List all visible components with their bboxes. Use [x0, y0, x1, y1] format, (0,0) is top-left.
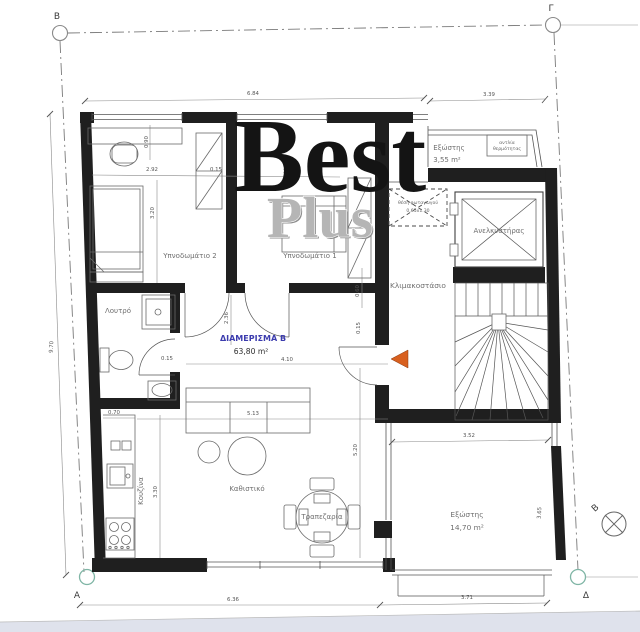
dim-hall-gap: 0.15 [161, 356, 173, 362]
dim-sofa-span: 5.13 [247, 411, 259, 417]
dim-desk-offset: 0.90 [144, 135, 150, 148]
floor-plan-drawing: Β Γ Α Δ Β 6.84 3.39 6.36 3.71 9.70 [0, 0, 640, 632]
label-kitchen: Κουζίνα [137, 477, 145, 505]
watermark-secondary: Plus [267, 185, 373, 250]
heat-pump-label-1: αντλία [499, 139, 515, 146]
label-stairwell: Κλιμακοστάσιο [390, 281, 446, 290]
dim-partition: 0.15 [210, 167, 222, 173]
label-bedroom2: Υπνοδωμάτιο 2 [162, 252, 216, 260]
label-dining: Τραπεζαρία [300, 513, 343, 521]
label-living-room: Καθιστικό [229, 485, 264, 493]
grid-letter-b: Β [54, 12, 60, 22]
apartment-area: 63,80 m² [234, 347, 269, 356]
dim-hall-depth: 2.36 [224, 311, 230, 324]
grid-letter-a: Α [74, 591, 81, 601]
label-bedroom1: Υπνοδωμάτιο 1 [282, 252, 336, 260]
dim-bedroom2-width: 2.92 [146, 167, 158, 173]
balcony-bottom-label: Εξώστης [450, 510, 483, 519]
dim-kitchen-depth: 3.30 [153, 485, 159, 498]
grid-letter-d: Δ [583, 591, 590, 601]
heat-pump-label-2: θερμότητας [493, 145, 521, 152]
dim-left-height: 9.70 [49, 340, 56, 353]
balcony-top-area: 3,55 m² [433, 156, 461, 164]
floor-plan-page: Β Γ Α Δ Β 6.84 3.39 6.36 3.71 9.70 [0, 0, 640, 632]
dim-entry-gap: 0.15 [356, 322, 362, 334]
grid-letter-g: Γ [548, 4, 553, 14]
dim-balcony-width: 3.52 [463, 433, 475, 439]
dim-bottom-left: 6.36 [227, 597, 240, 603]
dim-living-width: 4.10 [281, 357, 294, 363]
dim-bedroom2-depth: 3.20 [150, 206, 156, 219]
balcony-top-label: Εξώστης [433, 144, 464, 152]
balcony-bottom-area: 14,70 m² [450, 523, 484, 532]
dim-top-right: 3.39 [483, 92, 496, 98]
dim-balcony-depth: 3.65 [537, 507, 544, 519]
apartment-name: ΔΙΑΜΕΡΙΣΜΑ Β [220, 334, 286, 343]
label-bathroom: Λουτρό [105, 307, 131, 315]
dim-living-depth: 5.20 [353, 443, 359, 456]
label-elevator: Ανελκυστήρας [473, 227, 524, 235]
dim-wardrobe: 0.60 [355, 284, 361, 297]
